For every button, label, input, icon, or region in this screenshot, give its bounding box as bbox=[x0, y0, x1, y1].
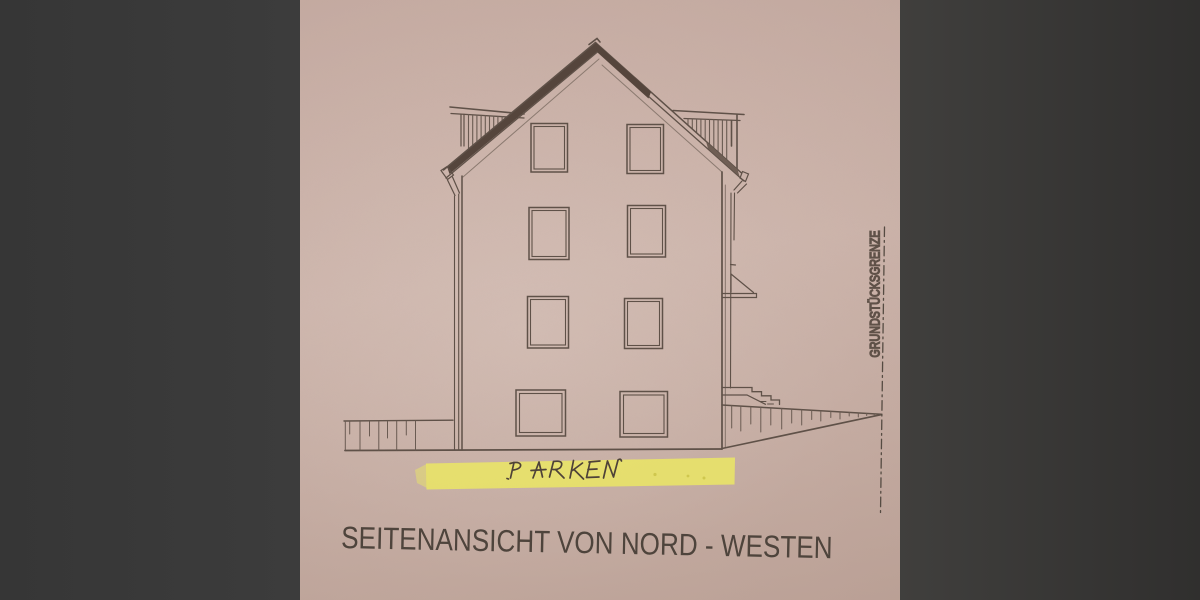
svg-text:GRUNDSTÜCKSGRENZE: GRUNDSTÜCKSGRENZE bbox=[866, 231, 883, 358]
svg-text:SEITENANSICHT VON NORD - WESTE: SEITENANSICHT VON NORD - WESTEN bbox=[341, 521, 833, 566]
